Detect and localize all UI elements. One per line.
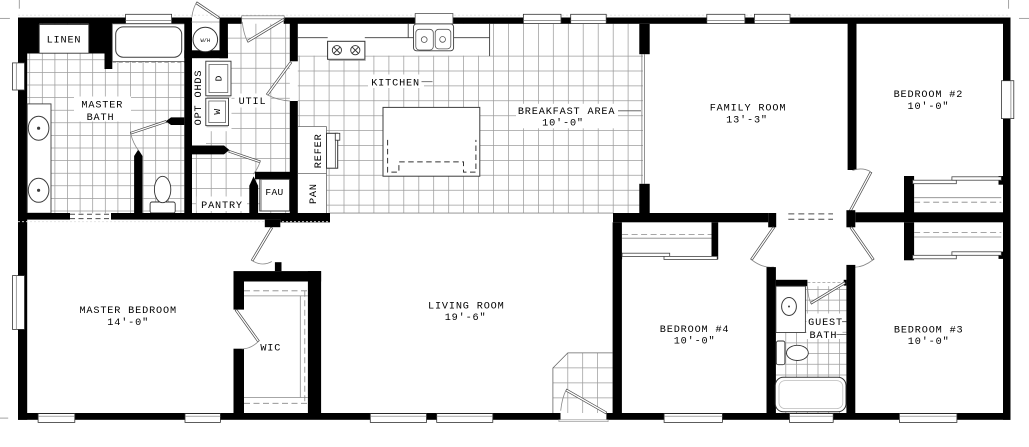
svg-text:MASTER BEDROOM: MASTER BEDROOM (79, 306, 177, 317)
svg-text:BEDROOM #4: BEDROOM #4 (660, 325, 730, 336)
svg-text:GUEST: GUEST (808, 318, 843, 329)
svg-text:OPT OHDS: OPT OHDS (194, 70, 205, 126)
svg-text:BATH: BATH (809, 331, 837, 342)
svg-text:PAN: PAN (309, 183, 320, 204)
svg-text:10'-0": 10'-0" (908, 101, 950, 113)
svg-text:BEDROOM #2: BEDROOM #2 (894, 90, 964, 101)
svg-text:14'-0": 14'-0" (107, 317, 149, 329)
svg-text:PANTRY: PANTRY (201, 201, 243, 212)
svg-text:19'-6": 19'-6" (445, 312, 487, 324)
svg-text:13'-3": 13'-3" (726, 115, 768, 127)
svg-text:10'-0": 10'-0" (542, 118, 584, 130)
svg-text:BREAKFAST AREA: BREAKFAST AREA (518, 107, 616, 118)
svg-text:REFER: REFER (314, 133, 325, 168)
svg-text:D: D (214, 75, 225, 81)
svg-text:10'-0": 10'-0" (674, 336, 716, 348)
svg-text:WIC: WIC (260, 343, 281, 354)
svg-text:FAU: FAU (265, 187, 283, 198)
svg-text:LIVING ROOM: LIVING ROOM (428, 302, 505, 313)
svg-text:FAMILY ROOM: FAMILY ROOM (710, 104, 787, 115)
svg-text:W/H: W/H (200, 38, 210, 44)
svg-text:UTIL: UTIL (239, 97, 267, 108)
svg-text:BEDROOM #3: BEDROOM #3 (894, 326, 964, 337)
svg-text:BATH: BATH (87, 113, 115, 124)
svg-text:LINEN: LINEN (47, 36, 82, 47)
svg-text:10'-0": 10'-0" (908, 336, 950, 348)
svg-text:KITCHEN: KITCHEN (371, 78, 420, 89)
svg-text:MASTER: MASTER (81, 100, 123, 111)
svg-text:W: W (212, 109, 223, 115)
